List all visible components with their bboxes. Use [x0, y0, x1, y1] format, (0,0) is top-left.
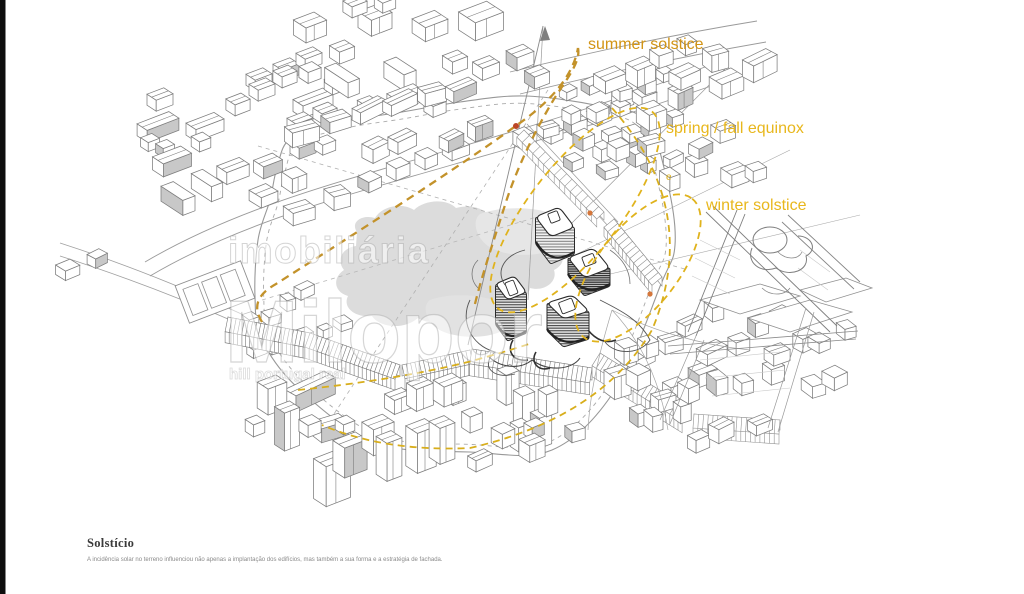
svg-text:spring / fall equinox: spring / fall equinox [666, 120, 804, 137]
svg-text:winter solstice: winter solstice [705, 197, 807, 214]
svg-text:Solstício: Solstício [87, 536, 134, 550]
svg-text:imobiliária: imobiliária [228, 230, 430, 271]
svg-text:hill portugal real: hill portugal real [229, 366, 346, 383]
svg-text:e: e [666, 172, 672, 183]
svg-text:A incidência solar no terreno: A incidência solar no terreno influencio… [87, 557, 443, 563]
svg-text:summer solstice: summer solstice [588, 36, 704, 53]
